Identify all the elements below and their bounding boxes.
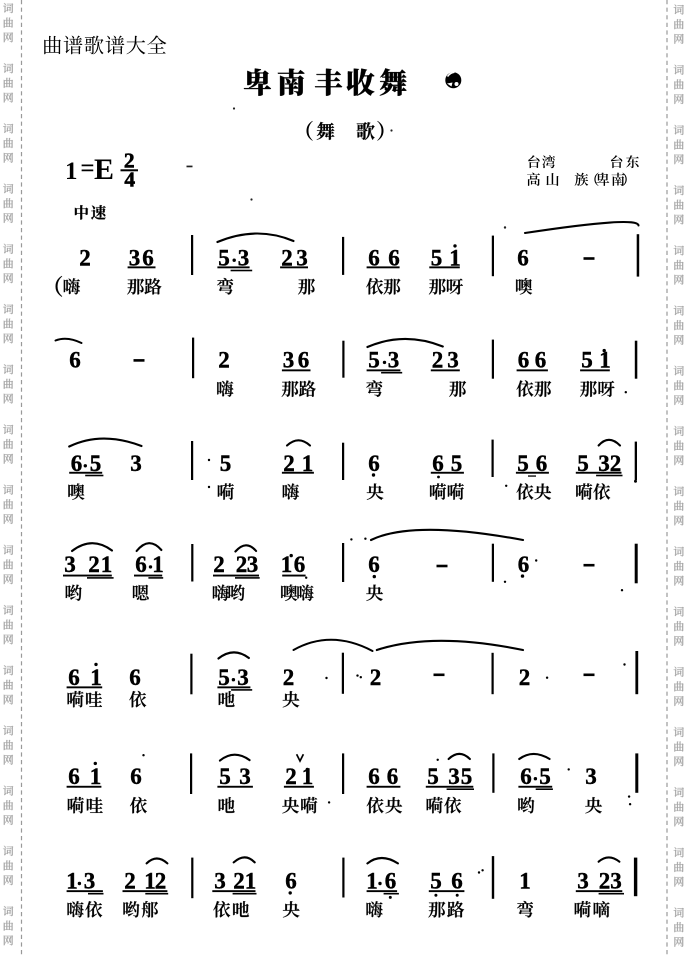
svg-text:3: 3 <box>447 348 459 373</box>
svg-text:6: 6 <box>518 348 530 373</box>
svg-text:3: 3 <box>610 869 622 894</box>
svg-text:6: 6 <box>294 552 306 577</box>
svg-text:3: 3 <box>577 869 589 894</box>
svg-text:1: 1 <box>90 764 102 789</box>
svg-text:6: 6 <box>385 869 397 894</box>
svg-text:5: 5 <box>430 869 442 894</box>
svg-text:6: 6 <box>518 552 530 577</box>
svg-text:E: E <box>94 153 114 186</box>
svg-text:3: 3 <box>388 348 400 373</box>
svg-text:2: 2 <box>155 869 167 894</box>
svg-text:5: 5 <box>461 764 473 789</box>
svg-text:3: 3 <box>585 764 597 789</box>
svg-text:2: 2 <box>283 665 295 690</box>
svg-text:3: 3 <box>84 869 96 894</box>
svg-text:6: 6 <box>68 665 80 690</box>
svg-text:2: 2 <box>599 869 611 894</box>
svg-text:2: 2 <box>370 665 382 690</box>
svg-text:3: 3 <box>283 348 295 373</box>
svg-text:6: 6 <box>285 869 297 894</box>
svg-text:6: 6 <box>298 348 310 373</box>
svg-text:5: 5 <box>539 764 551 789</box>
svg-text:3: 3 <box>237 665 249 690</box>
svg-text:6: 6 <box>368 451 380 476</box>
svg-text:1: 1 <box>152 552 164 577</box>
svg-text:3: 3 <box>64 552 76 577</box>
svg-text:3: 3 <box>247 552 259 577</box>
svg-text:1: 1 <box>366 869 378 894</box>
svg-text:1: 1 <box>65 158 78 185</box>
svg-text:3: 3 <box>239 764 251 789</box>
svg-text:6: 6 <box>130 764 142 789</box>
svg-text:2: 2 <box>124 869 136 894</box>
svg-text:5: 5 <box>219 764 231 789</box>
svg-text:3: 3 <box>448 764 460 789</box>
svg-text:1: 1 <box>66 869 78 894</box>
svg-text:1: 1 <box>101 552 113 577</box>
svg-text:2: 2 <box>88 552 100 577</box>
svg-text:5: 5 <box>220 451 232 476</box>
svg-text:6: 6 <box>535 348 547 373</box>
svg-text:6: 6 <box>517 245 529 270</box>
svg-text:6: 6 <box>135 552 147 577</box>
svg-text:5: 5 <box>427 764 439 789</box>
svg-text:3: 3 <box>130 451 142 476</box>
svg-text:2: 2 <box>285 764 297 789</box>
svg-text:2: 2 <box>236 552 248 577</box>
svg-text:2: 2 <box>218 348 230 373</box>
svg-text:5: 5 <box>368 348 380 373</box>
svg-text:6: 6 <box>520 764 532 789</box>
svg-text:1: 1 <box>90 665 102 690</box>
svg-text:6: 6 <box>368 764 380 789</box>
svg-text:5: 5 <box>218 665 230 690</box>
svg-text:6: 6 <box>68 764 80 789</box>
svg-text:6: 6 <box>451 869 463 894</box>
svg-text:=: = <box>80 155 94 182</box>
svg-text:6: 6 <box>368 552 380 577</box>
svg-text:5: 5 <box>581 348 593 373</box>
svg-text:2: 2 <box>233 869 245 894</box>
svg-text:2: 2 <box>79 245 91 270</box>
svg-text:1: 1 <box>245 869 257 894</box>
svg-text:2: 2 <box>519 665 531 690</box>
svg-text:6: 6 <box>129 665 141 690</box>
svg-text:1: 1 <box>302 764 314 789</box>
svg-text:6: 6 <box>387 764 399 789</box>
svg-text:6: 6 <box>69 348 81 373</box>
svg-text:3: 3 <box>214 869 226 894</box>
svg-text:2: 2 <box>213 552 225 577</box>
svg-text:1: 1 <box>519 869 531 894</box>
svg-text:2: 2 <box>432 348 444 373</box>
